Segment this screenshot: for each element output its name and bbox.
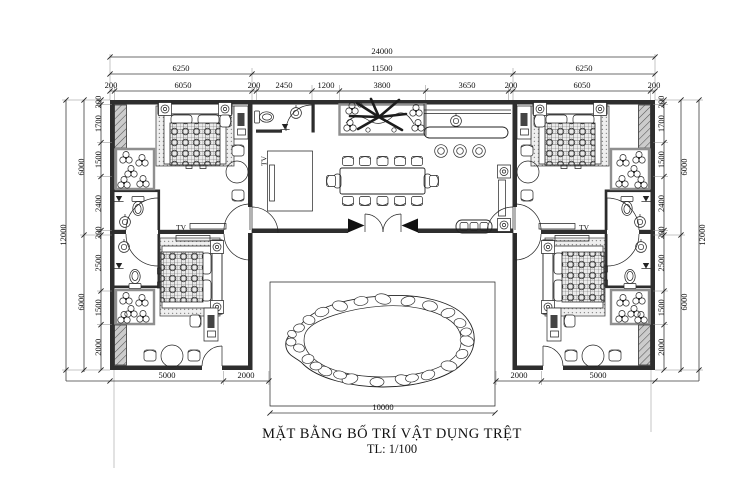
dim-right-3: 2400 [656,195,666,212]
tv-label: TV [579,223,590,232]
toilet-icon [621,197,633,216]
wardrobe [115,105,127,148]
dim-bottom-left-1: 2000 [238,370,255,380]
dim-top-detail-2: 200 [248,80,261,90]
plants [116,149,154,189]
dim-bottom-right-0: 2000 [511,370,528,380]
floor-drain-icon [114,263,123,269]
floor-plan-drawing: TV [0,0,750,500]
bedroom-bottom-left [114,234,250,367]
wc [255,105,313,131]
floor-drain-icon [641,196,650,202]
dim-right-1: 1700 [656,115,666,132]
dim-left-0: 200 [93,96,103,109]
tv-wall: TV [260,151,313,211]
dim-left-4: 200 [93,226,103,239]
dim-left-7: 2000 [93,339,103,356]
room-door [515,204,541,230]
dim-right-half-1: 6000 [679,294,689,311]
dim-top-detail-6: 3650 [459,80,476,90]
stool-icon [435,145,448,158]
dim-left-5: 2500 [93,255,103,272]
dim-pool-width: 10000 [372,402,393,412]
bathroom [607,196,651,230]
bathroom [114,196,158,230]
hall: TV [252,99,513,233]
dim-top-detail-3: 2450 [276,80,293,90]
toilet-icon [129,270,141,289]
floor-drain-icon [641,263,650,269]
stool-icon [454,145,467,158]
dim-top-section-2: 6250 [576,63,593,73]
bedroom-top-left: TV [114,103,250,233]
dim-left-6: 1500 [93,299,103,316]
toilet-icon [132,197,144,216]
dim-right-overall: 12000 [697,224,707,245]
tea-table [565,345,621,367]
dim-right-4: 200 [656,226,666,239]
dim-overall-width: 24000 [371,46,392,56]
dim-top-section-0: 6250 [173,63,190,73]
plants [116,290,154,324]
bed [531,103,609,169]
dim-left-half-0: 6000 [76,159,86,176]
bedroom-bottom-right [515,234,651,367]
dim-left-overall: 12000 [58,224,68,245]
room-door [515,234,541,260]
dim-right-2: 1500 [656,151,666,168]
media-unit-right [498,165,511,232]
floor-drain-icon [114,196,123,202]
dim-top-detail-5: 3800 [374,80,391,90]
bathroom [114,234,158,289]
toilet-icon [255,111,274,123]
tea-table [144,345,200,367]
stool-icon [473,145,486,158]
bed [158,238,224,316]
dim-top-detail-8: 6050 [574,80,591,90]
kitchen-sink-icon [451,113,462,126]
tv-label: TV [176,223,187,232]
terrace-door [202,346,222,366]
dim-top-section-1: 11500 [372,63,393,73]
sink-icon [291,105,302,118]
dim-top-detail-7: 200 [505,80,518,90]
wardrobe [639,105,651,148]
dim-left-1: 1700 [93,115,103,132]
plants [611,149,649,189]
bed [156,103,234,169]
dim-bottom-left-0: 5000 [159,370,176,380]
title-block: MẶT BẰNG BỐ TRÍ VẬT DỤNG TRỆT TL: 1/100 [262,424,522,456]
drawing-scale: TL: 1/100 [367,442,417,456]
dim-right-0: 200 [656,96,666,109]
dim-top-detail-9: 200 [648,80,661,90]
dim-right-half-0: 6000 [679,159,689,176]
toilet-icon [624,270,636,289]
wardrobe [115,325,127,365]
floor-drain-icon [280,124,289,130]
dim-top-detail-0: 200 [105,80,118,90]
kitchen [424,104,511,157]
plants [611,290,649,324]
wardrobe [639,325,651,365]
room-door [224,204,250,230]
dim-left-2: 1500 [93,151,103,168]
dim-bottom-right-1: 5000 [590,370,607,380]
drawing-title: MẶT BẰNG BỐ TRÍ VẬT DỤNG TRỆT [262,424,522,442]
dim-right-7: 2000 [656,339,666,356]
terrace-door [543,346,563,366]
floor-plan-page: TV [0,0,750,500]
dim-right-5: 2500 [656,255,666,272]
bed [542,238,608,316]
room-door [224,234,250,260]
dim-top-detail-4: 1200 [318,80,335,90]
dim-top-detail-1: 6050 [175,80,192,90]
dining-set [327,157,439,206]
entry-double-door [348,214,418,233]
bedroom-top-right: TV [515,103,651,233]
dim-right-6: 1500 [656,299,666,316]
dim-left-3: 2400 [93,195,103,212]
planter-box [340,99,426,135]
bathroom [607,234,651,289]
dimension-layer: 24000 6250 11500 6250 200 6050 200 2450 … [58,46,707,468]
dim-left-half-1: 6000 [76,294,86,311]
pool-area [270,282,495,406]
hall-tv-label: TV [260,155,269,166]
